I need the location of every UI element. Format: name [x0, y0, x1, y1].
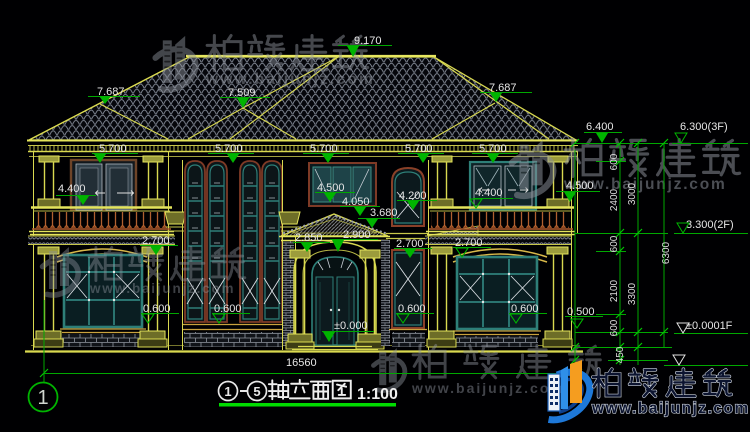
svg-text:16560: 16560	[286, 357, 317, 369]
svg-text:1: 1	[37, 387, 48, 409]
svg-text:5: 5	[253, 384, 260, 399]
svg-text:±0.0001F: ±0.0001F	[686, 320, 733, 332]
svg-text:450: 450	[615, 346, 626, 363]
svg-text:www.baijunjz.com: www.baijunjz.com	[411, 380, 565, 396]
svg-text:4.400: 4.400	[475, 187, 503, 199]
svg-text:±0.000: ±0.000	[334, 320, 368, 332]
svg-text:600: 600	[609, 235, 620, 252]
svg-text:3.680: 3.680	[370, 207, 398, 219]
svg-text:6.400: 6.400	[586, 121, 614, 133]
svg-text:600: 600	[609, 153, 620, 170]
svg-text:www.baijunjz.com: www.baijunjz.com	[205, 71, 375, 88]
svg-text:3.300(2F): 3.300(2F)	[686, 219, 734, 231]
svg-text:6300: 6300	[661, 241, 672, 264]
svg-text:1:100: 1:100	[357, 386, 398, 403]
svg-text:6.300(3F): 6.300(3F)	[680, 121, 728, 133]
svg-text:2400: 2400	[609, 188, 620, 211]
svg-text:4.500: 4.500	[566, 180, 594, 192]
svg-text:3000: 3000	[627, 182, 638, 205]
svg-text:4.400: 4.400	[58, 183, 86, 195]
svg-text:www.baijunjz.com: www.baijunjz.com	[89, 281, 235, 296]
svg-text:3300: 3300	[627, 282, 638, 305]
svg-text:2100: 2100	[609, 279, 620, 302]
svg-text:1: 1	[224, 384, 231, 399]
svg-text:600: 600	[609, 319, 620, 336]
svg-text:www.baijunjz.com: www.baijunjz.com	[591, 400, 750, 417]
